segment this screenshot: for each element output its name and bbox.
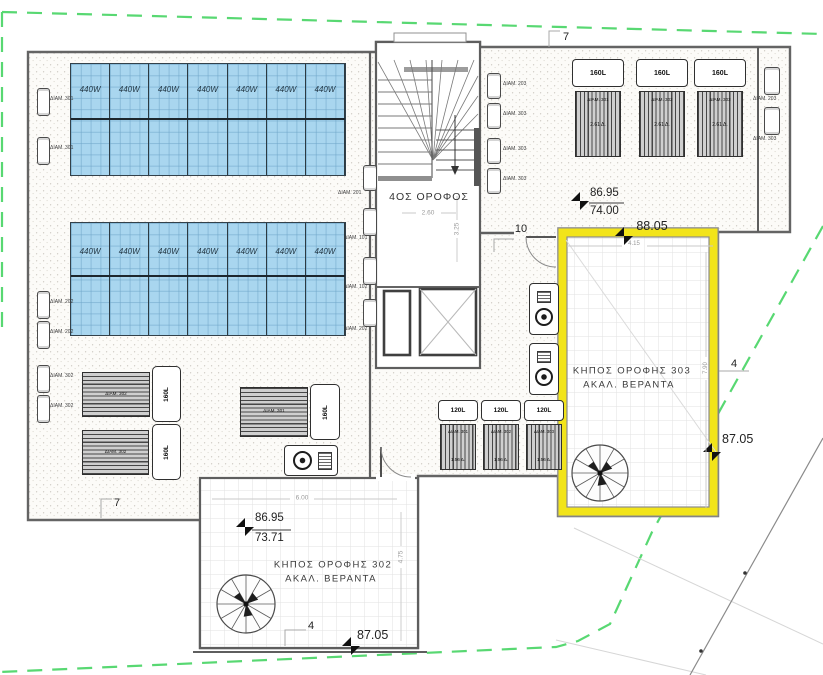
collector-unit-label: ΔΙΑΜ. 302 <box>484 429 518 434</box>
ac-unit-label: ΔΙΑΜ. 302 <box>50 403 73 409</box>
panel-wattage: 440W <box>71 85 109 94</box>
collector-unit-label: ΔΙΑΜ. 301 <box>441 429 475 434</box>
ac-unit <box>37 395 50 423</box>
tank-capacity: 120L <box>451 407 466 414</box>
collector-area-label: 1.56 Δ. <box>527 457 561 462</box>
panel-wattage: 440W <box>149 247 187 256</box>
ac-unit-label: ΔΙΑΜ. 202 <box>50 329 73 335</box>
dim-top-width: 7 <box>563 31 569 43</box>
tank-capacity: 160L <box>163 387 170 402</box>
tank-capacity: 160L <box>163 445 170 460</box>
tank-capacity: 160L <box>590 70 606 77</box>
panel-wattage: 440W <box>110 247 148 256</box>
collector-unit-label: ΔΙΑΜ. 303 <box>527 429 561 434</box>
collector-unit-label: ΔΙΑΜ. 302 <box>83 391 149 396</box>
garden-302-subtitle: ΑΚΑΛ. ΒΕΡΑΝΤΑ <box>285 574 377 585</box>
solar-collector: ΔΙΑΜ. 302 1.56 Δ. <box>483 424 519 470</box>
dim-garden302-depth: 4.75 <box>398 551 405 564</box>
roof-plan-canvas: 440W 440W 440W 440W 440W 440W 440W 440W … <box>0 0 823 675</box>
water-heater-tank: 120L <box>481 400 521 421</box>
solar-collector: ΔΙΑΜ. 302 <box>82 430 149 475</box>
collector-unit-label: ΔΙΑΜ. 303 <box>698 97 742 102</box>
ac-unit <box>363 208 377 236</box>
ac-unit <box>363 257 377 285</box>
ac-unit-label: ΔΙΑΜ. 303 <box>503 146 526 152</box>
ac-unit <box>487 138 501 164</box>
panel-wattage: 440W <box>267 247 305 256</box>
water-heater-tank: 160L <box>152 366 181 422</box>
ac-unit <box>363 165 377 191</box>
collector-area-label: 2.61 Δ. <box>576 122 620 128</box>
panel-row-divider <box>71 275 345 277</box>
heat-pump-unit <box>284 445 338 476</box>
solar-panel: 440W <box>188 223 227 335</box>
tank-capacity: 120L <box>537 407 552 414</box>
panel-wattage: 440W <box>306 247 344 256</box>
fan-icon <box>535 368 553 386</box>
collector-unit-label: ΔΙΑΜ. 301 <box>241 408 307 413</box>
ac-unit <box>37 88 50 116</box>
panel-wattage: 440W <box>228 85 266 94</box>
ac-unit <box>764 67 780 95</box>
ac-unit-label: ΔΙΑΜ. 303 <box>503 176 526 182</box>
solar-panel: 440W <box>267 223 306 335</box>
ac-unit-label: ΔΙΑΜ. 301 <box>50 145 73 151</box>
ac-unit <box>37 365 50 393</box>
solar-array-1: 440W 440W 440W 440W 440W 440W 440W <box>70 63 346 176</box>
water-heater-tank: 160L <box>310 384 340 440</box>
solar-collector: ΔΙΑΜ. 303 1.56 Δ. <box>526 424 562 470</box>
ac-unit <box>764 107 780 135</box>
collector-area-label: 1.56 Δ. <box>441 457 475 462</box>
dim-bottom-depth: 4 <box>308 620 314 632</box>
panel-wattage: 440W <box>188 85 226 94</box>
ac-unit-label: ΔΙΑΜ. 102 <box>344 284 367 290</box>
tank-capacity: 120L <box>494 407 509 414</box>
ac-unit-label: ΔΙΑΜ. 202 <box>344 326 367 332</box>
ac-unit-label: ΔΙΑΜ. 303 <box>753 136 776 142</box>
water-heater-tank: 160L <box>572 59 624 87</box>
water-heater-tank: 120L <box>438 400 478 421</box>
elevation-roof-top: 86.95 <box>590 187 619 199</box>
water-heater-tank: 160L <box>636 59 688 87</box>
fan-icon <box>293 451 312 470</box>
ac-unit-label: ΔΙΑΜ. 303 <box>503 111 526 117</box>
highlighted-region-303[interactable] <box>558 228 718 516</box>
ac-unit <box>487 168 501 194</box>
collector-unit-label: ΔΙΑΜ. 302 <box>640 97 684 102</box>
solar-panel: 440W <box>228 223 267 335</box>
ac-unit-label: ΔΙΑΜ. 101 <box>344 235 367 241</box>
elevation-garden302-top: 86.95 <box>255 512 284 524</box>
dim-stair-width: 2.60 <box>422 210 435 217</box>
panel-wattage: 440W <box>267 85 305 94</box>
floor-label: 4ΟΣ ΟΡΟΦΟΣ <box>389 191 469 203</box>
solar-panel: 440W <box>71 223 110 335</box>
tank-capacity: 160L <box>654 70 670 77</box>
spiral-stair-302 <box>217 575 275 633</box>
dim-left-width: 7 <box>114 497 120 509</box>
dim-garden302-width: 6.00 <box>296 495 309 502</box>
collector-area-label: 2.61 Δ. <box>640 122 684 128</box>
heat-pump-unit <box>529 343 559 395</box>
panel-wattage: 440W <box>306 85 344 94</box>
ac-unit-label: ΔΙΑΜ. 301 <box>50 96 73 102</box>
ac-unit-label: ΔΙΑΜ. 302 <box>50 373 73 379</box>
elevation-level-east: 87.05 <box>722 432 753 446</box>
panel-wattage: 440W <box>110 85 148 94</box>
collector-area-label: 2.61 Δ. <box>698 122 742 128</box>
collector-unit-label: ΔΙΑΜ. 302 <box>83 449 148 454</box>
water-heater-tank: 160L <box>694 59 746 87</box>
water-heater-tank: 160L <box>152 424 181 480</box>
dim-right-depth: 4 <box>731 358 737 370</box>
solar-panel: 440W <box>149 223 188 335</box>
grille-icon <box>537 291 551 303</box>
solar-collector: ΔΙΑΜ. 301 <box>240 387 308 437</box>
solar-collector: ΔΙΑΜ. 303 2.61 Δ. <box>697 91 743 157</box>
solar-collector: ΔΙΑΜ. 302 2.61 Δ. <box>639 91 685 157</box>
solar-array-2: 440W 440W 440W 440W 440W 440W 440W <box>70 222 346 336</box>
ac-unit-label: ΔΙΑΜ. 202 <box>50 299 73 305</box>
dim-stair-depth: 3.25 <box>454 223 461 236</box>
ac-unit-label: ΔΙΑΜ. 203 <box>753 96 776 102</box>
panel-wattage: 440W <box>71 247 109 256</box>
heat-pump-unit <box>529 283 559 335</box>
ac-unit-label: ΔΙΑΜ. 203 <box>503 81 526 87</box>
dim-door: 10 <box>515 223 527 235</box>
garden-302-title: ΚΗΠΟΣ ΟΡΟΦΗΣ 302 <box>274 560 392 571</box>
elevation-level-south: 87.05 <box>357 628 388 642</box>
panel-wattage: 440W <box>188 247 226 256</box>
grille-icon <box>537 351 551 363</box>
fan-icon <box>535 308 553 326</box>
ac-unit <box>37 321 50 349</box>
tank-capacity: 160L <box>321 405 328 420</box>
panel-wattage: 440W <box>149 85 187 94</box>
collector-unit-label: ΔΙΑΜ. 301 <box>576 97 620 102</box>
panel-wattage: 440W <box>228 247 266 256</box>
solar-collector: ΔΙΑΜ. 301 1.56 Δ. <box>440 424 476 470</box>
solar-collector: ΔΙΑΜ. 301 2.61 Δ. <box>575 91 621 157</box>
tank-capacity: 160L <box>712 70 728 77</box>
elevation-garden302-bottom: 73.71 <box>255 532 284 544</box>
solar-panel: 440W <box>306 223 345 335</box>
ac-unit <box>37 137 50 165</box>
ac-unit <box>363 299 377 327</box>
ac-unit-label: ΔΙΑΜ. 201 <box>338 190 361 196</box>
grille-icon <box>318 452 332 470</box>
solar-panel: 440W <box>110 223 149 335</box>
solar-collector: ΔΙΑΜ. 302 <box>82 372 150 417</box>
ac-unit <box>37 291 50 319</box>
collector-area-label: 1.56 Δ. <box>484 457 518 462</box>
panel-row-divider <box>71 118 345 120</box>
ac-unit <box>487 73 501 99</box>
elevation-roof-bottom: 74.00 <box>590 205 619 217</box>
ac-unit <box>487 103 501 129</box>
